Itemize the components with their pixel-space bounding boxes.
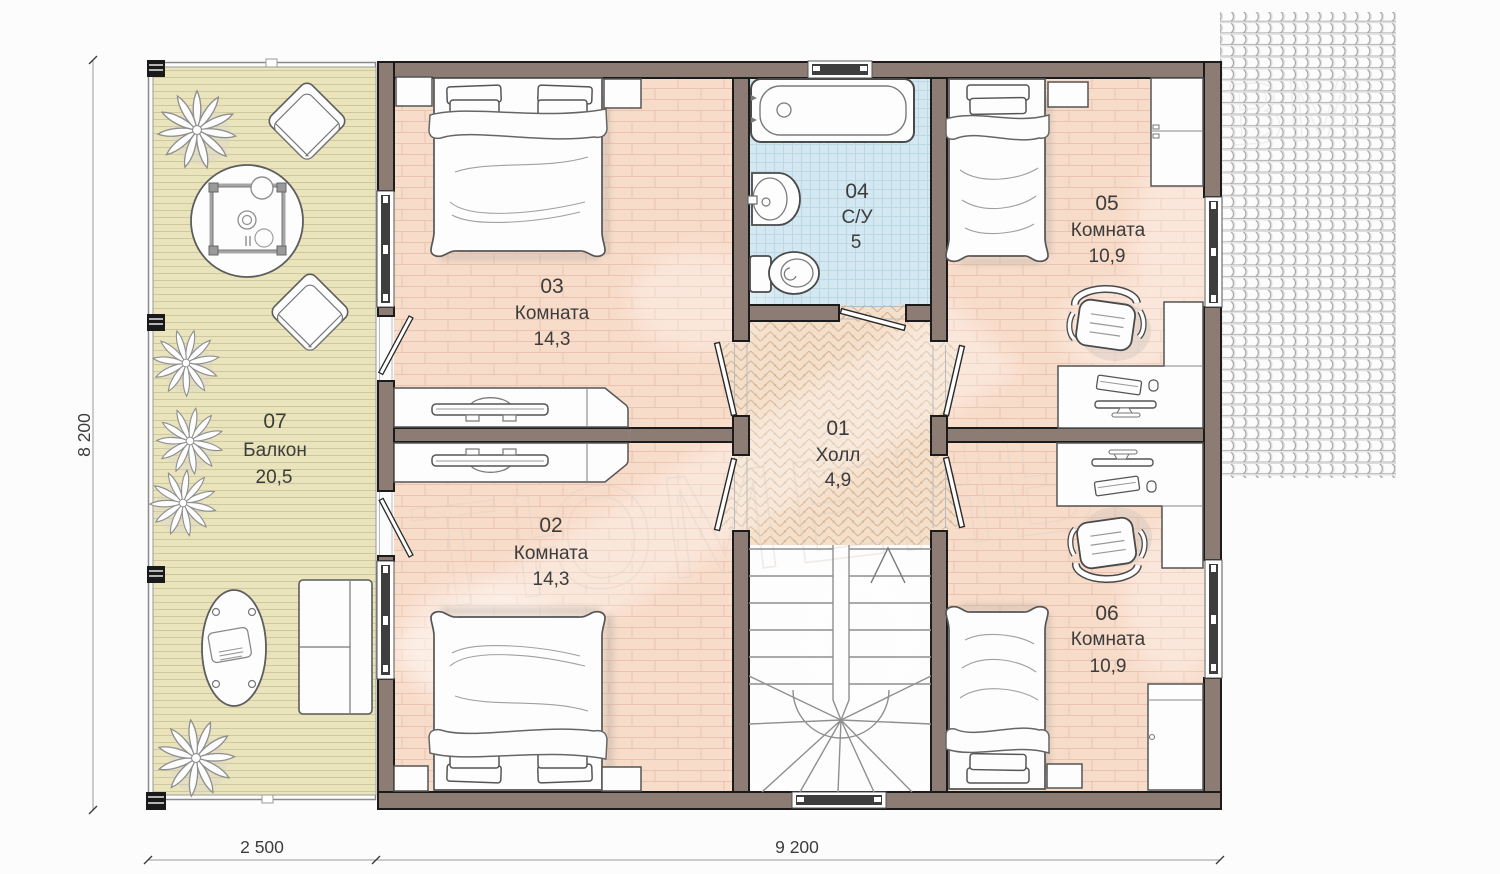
- svg-text:Комната: Комната: [514, 543, 589, 564]
- svg-text:9 200: 9 200: [775, 837, 819, 857]
- svg-text:02: 02: [539, 514, 562, 537]
- svg-text:01: 01: [826, 417, 849, 440]
- svg-text:20,5: 20,5: [256, 467, 293, 488]
- svg-text:14,3: 14,3: [534, 329, 571, 350]
- svg-text:10,9: 10,9: [1090, 656, 1127, 677]
- svg-text:05: 05: [1095, 192, 1118, 215]
- svg-text:Комната: Комната: [515, 303, 590, 324]
- svg-text:8 200: 8 200: [74, 413, 94, 457]
- svg-text:04: 04: [845, 180, 869, 203]
- svg-text:С/У: С/У: [841, 207, 873, 228]
- svg-text:Холл: Холл: [816, 445, 861, 466]
- svg-text:14,3: 14,3: [533, 569, 570, 590]
- svg-text:2 500: 2 500: [240, 837, 284, 857]
- svg-text:4,9: 4,9: [825, 470, 851, 491]
- svg-text:10,9: 10,9: [1089, 246, 1126, 267]
- svg-text:07: 07: [263, 410, 286, 433]
- svg-text:06: 06: [1095, 602, 1118, 625]
- svg-text:Комната: Комната: [1071, 629, 1146, 650]
- svg-text:Балкон: Балкон: [243, 440, 307, 461]
- svg-text:Комната: Комната: [1071, 220, 1146, 241]
- svg-text:03: 03: [540, 275, 563, 298]
- svg-text:5: 5: [851, 232, 862, 253]
